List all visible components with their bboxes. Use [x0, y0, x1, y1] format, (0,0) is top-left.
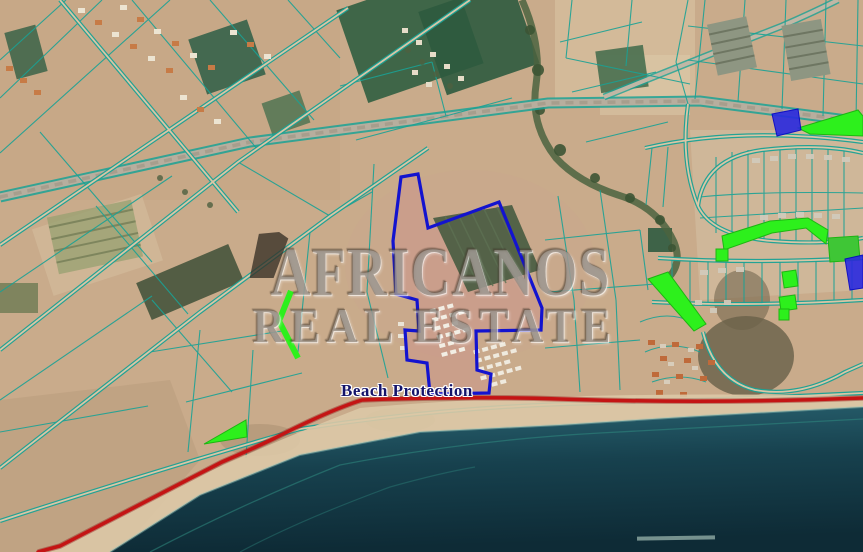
beach-protection-label: Beach Protection: [341, 381, 473, 401]
map-viewport: AFRICANOS REAL ESTATE Beach Protection: [0, 0, 863, 552]
green-parcel-east-small-3: [779, 309, 789, 320]
green-parcel-east-small-1: [782, 270, 798, 288]
satellite-map: [0, 0, 863, 552]
green-parcel-east-small-4: [716, 249, 728, 261]
